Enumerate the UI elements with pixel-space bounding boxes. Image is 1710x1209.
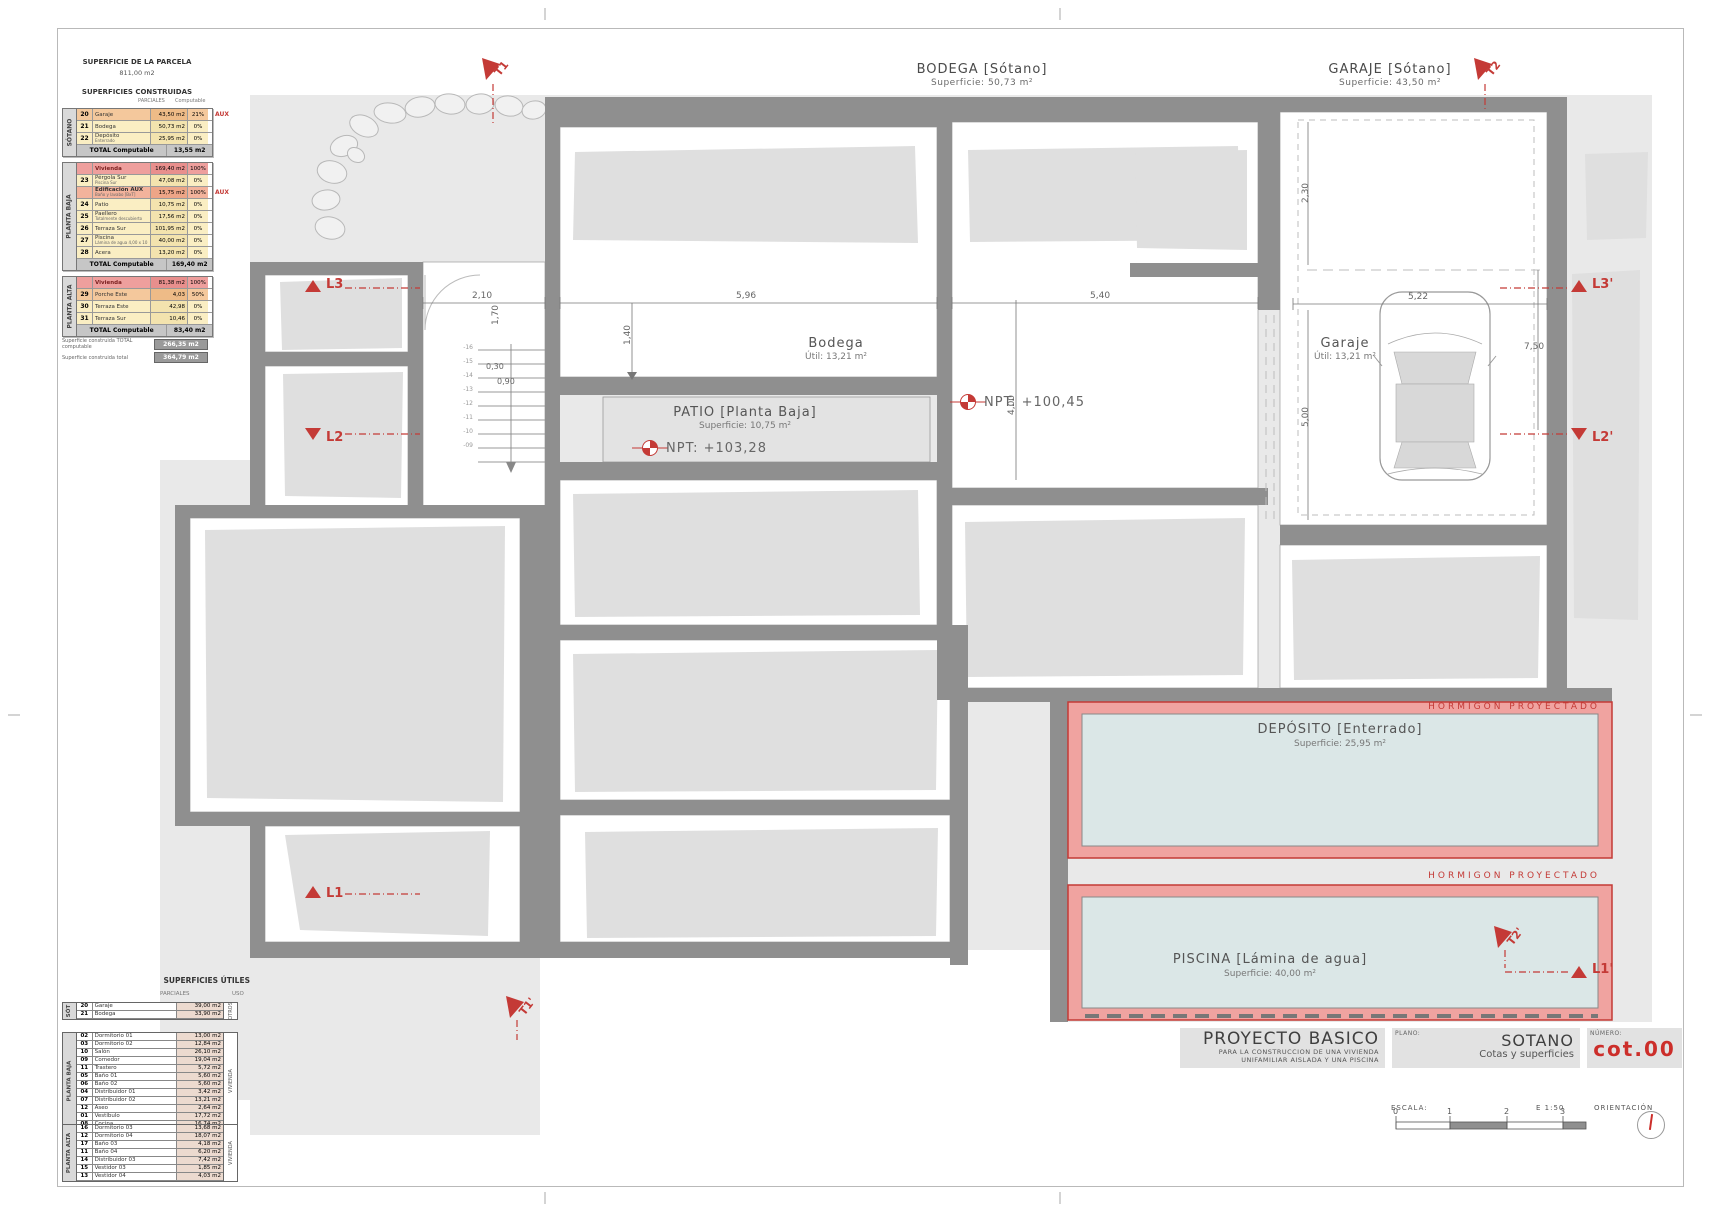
aux-tag: AUX xyxy=(215,189,229,196)
deposito-title: DEPÓSITO [Enterrado] xyxy=(1180,722,1500,737)
utable-row: 13 Vestidor 04 4,03 m2 xyxy=(77,1173,223,1181)
utable-row: 06 Baño 02 5,60 m2 xyxy=(77,1081,223,1089)
row-label-cell: PaelleroTotalmente descubierto xyxy=(93,211,151,222)
row-number xyxy=(77,187,93,198)
marker-l3-prime: L3' xyxy=(1592,277,1613,292)
built-sub-computable: Computable xyxy=(175,98,205,104)
utable-row: 20 Garaje 39,00 m2 xyxy=(77,1003,223,1011)
utable-row: 14 Distribuidor 03 7,42 m2 xyxy=(77,1157,223,1165)
row-label-cell: DepósitoEnterrado xyxy=(93,133,151,144)
row-label: Distribuidor 01 xyxy=(93,1089,178,1096)
table-row: 22 DepósitoEnterrado 25,95 m2 0% xyxy=(77,133,212,145)
row-value: 17,72 m2 xyxy=(177,1113,223,1120)
row-number: 21 xyxy=(77,121,93,132)
garaje-room-label: Garaje xyxy=(1265,336,1425,351)
row-number: 22 xyxy=(77,133,93,144)
utable-sot-side-label: SÓT xyxy=(66,1005,72,1017)
stair-num: -13 xyxy=(455,386,473,400)
built-sub-parciales: PARCIALES xyxy=(138,98,165,104)
garaje-zone-sub: Superficie: 43,50 m² xyxy=(1290,78,1490,88)
total-value: 169,40 m2 xyxy=(167,259,212,270)
row-label: Vestidor 03 xyxy=(93,1165,178,1172)
table-row: 23 Pérgola SurPiscina Sur 47,08 m2 0% xyxy=(77,175,212,187)
row-percent: 21% xyxy=(188,109,208,120)
piscina-title: PISCINA [Lámina de agua] xyxy=(1110,952,1430,967)
row-value: 47,08 m2 xyxy=(151,175,188,186)
table-sotano: SÓTANO 20 Garaje 43,50 m2 21% AUX 21 Bod… xyxy=(62,108,213,157)
row-value: 81,38 m2 xyxy=(151,277,188,288)
row-label: Garaje xyxy=(93,1003,178,1010)
dim-5-00: 5,00 xyxy=(1301,407,1311,427)
dim-7-50: 7,50 xyxy=(1524,342,1544,352)
row-value: 4,18 m2 xyxy=(177,1141,223,1148)
marker-l1: L1 xyxy=(326,886,343,901)
table-pb-side: PLANTA BAJA xyxy=(63,163,77,270)
row-number: 09 xyxy=(77,1057,93,1064)
bodega-zone-sub: Superficie: 50,73 m² xyxy=(882,78,1082,88)
row-label-cell: Porche Este xyxy=(93,289,151,300)
table-sotano-side: SÓTANO xyxy=(63,109,77,156)
titleblock-numero: NÚMERO: cot.00 xyxy=(1587,1028,1682,1068)
summary-line-1: Superficie construida TOTAL computable 2… xyxy=(62,338,208,350)
scale-tick-0: 0 xyxy=(1393,1107,1398,1116)
utable-pa-rows: 16 Dormitorio 03 13,68 m2 12 Dormitorio … xyxy=(77,1125,223,1181)
garaje-room-util: Útil: 13,21 m² xyxy=(1265,352,1425,362)
row-percent: 0% xyxy=(188,313,208,324)
row-number: 04 xyxy=(77,1089,93,1096)
row-number: 11 xyxy=(77,1149,93,1156)
summary-label: Superficie construida total xyxy=(62,355,154,361)
row-percent: 0% xyxy=(188,175,208,186)
row-number: 14 xyxy=(77,1157,93,1164)
utable-row: 09 Comedor 19,04 m2 xyxy=(77,1057,223,1065)
utable-row: 12 Aseo 2,64 m2 xyxy=(77,1105,223,1113)
row-label: Distribuidor 03 xyxy=(93,1157,178,1164)
stair-num: -16 xyxy=(455,344,473,358)
total-label: TOTAL Computable xyxy=(77,325,167,336)
table-row: 26 Terraza Sur 101,95 m2 0% xyxy=(77,223,212,235)
dim-1-70: 1,70 xyxy=(491,305,501,325)
row-number: 05 xyxy=(77,1073,93,1080)
utable-row: 07 Distribuidor 02 13,21 m2 xyxy=(77,1097,223,1105)
row-number: 31 xyxy=(77,313,93,324)
row-value: 25,95 m2 xyxy=(151,133,188,144)
row-label: Vestidor 04 xyxy=(93,1173,178,1180)
row-number: 12 xyxy=(77,1105,93,1112)
utable-row: 04 Distribuidor 01 3,42 m2 xyxy=(77,1089,223,1097)
stair-num: -11 xyxy=(455,414,473,428)
dim-5-96: 5,96 xyxy=(736,291,756,301)
row-number: 07 xyxy=(77,1097,93,1104)
row-percent: 0% xyxy=(188,223,208,234)
row-number: 02 xyxy=(77,1033,93,1040)
row-label-cell: Vivienda xyxy=(93,163,151,174)
stair-num: -12 xyxy=(455,400,473,414)
row-value: 2,64 m2 xyxy=(177,1105,223,1112)
row-number: 03 xyxy=(77,1041,93,1048)
utable-pa-uso: VIVIENDA xyxy=(223,1125,237,1181)
row-percent: 100% xyxy=(188,277,208,288)
row-number: 06 xyxy=(77,1081,93,1088)
stair-num: -15 xyxy=(455,358,473,372)
utiles-sub-parciales: PARCIALES xyxy=(160,991,190,997)
uso-label: VIVIENDA xyxy=(228,1069,234,1093)
row-value: 13,68 m2 xyxy=(177,1125,223,1132)
uso-label: OTROS xyxy=(228,1002,234,1020)
utable-sot-side: SÓT xyxy=(63,1003,77,1019)
utable-row: 03 Dormitorio 02 12,84 m2 xyxy=(77,1041,223,1049)
dim-0-30: 0,30 xyxy=(486,362,504,371)
row-percent: 0% xyxy=(188,133,208,144)
row-number: 16 xyxy=(77,1125,93,1132)
row-value: 7,42 m2 xyxy=(177,1157,223,1164)
row-label-cell: Garaje xyxy=(93,109,151,120)
row-percent: 0% xyxy=(188,121,208,132)
title-gap xyxy=(540,950,1066,1028)
row-value: 169,40 m2 xyxy=(151,163,188,174)
marker-l2-prime: L2' xyxy=(1592,430,1613,445)
stair-num: -14 xyxy=(455,372,473,386)
marker-l3: L3 xyxy=(326,277,343,292)
row-label: Vestíbulo xyxy=(93,1113,178,1120)
table-row: 25 PaelleroTotalmente descubierto 17,56 … xyxy=(77,211,212,223)
row-percent: 0% xyxy=(188,235,208,246)
utable-pa-side-label: PLANTA ALTA xyxy=(67,1133,73,1173)
row-value: 13,20 m2 xyxy=(151,247,188,258)
table-total-row: TOTAL Computable 13,55 m2 xyxy=(77,145,212,156)
row-number xyxy=(77,277,93,288)
row-value: 3,42 m2 xyxy=(177,1089,223,1096)
utable-row: 12 Dormitorio 04 18,07 m2 xyxy=(77,1133,223,1141)
compass-icon xyxy=(1637,1111,1665,1139)
row-number: 12 xyxy=(77,1133,93,1140)
scale-tick-1: 1 xyxy=(1447,1107,1452,1116)
utable-row: 16 Dormitorio 03 13,68 m2 xyxy=(77,1125,223,1133)
utable-row: 11 Baño 04 6,20 m2 xyxy=(77,1149,223,1157)
scale-tick-2: 2 xyxy=(1504,1107,1509,1116)
row-label: Dormitorio 04 xyxy=(93,1133,178,1140)
row-value: 4,03 xyxy=(151,289,188,300)
table-sotano-rows: 20 Garaje 43,50 m2 21% AUX 21 Bodega 50,… xyxy=(77,109,212,145)
total-value: 83,40 m2 xyxy=(167,325,212,336)
utable-row: 01 Vestíbulo 17,72 m2 xyxy=(77,1113,223,1121)
table-pa-side: PLANTA ALTA xyxy=(63,277,77,336)
utable-sot-uso: OTROS xyxy=(223,1003,237,1019)
row-number: 24 xyxy=(77,199,93,210)
orientacion-label: ORIENTACIÓN xyxy=(1594,1104,1653,1112)
row-value: 6,20 m2 xyxy=(177,1149,223,1156)
row-value: 4,03 m2 xyxy=(177,1173,223,1180)
row-percent: 0% xyxy=(188,199,208,210)
row-label: Dormitorio 02 xyxy=(93,1041,178,1048)
summary-value: 364,79 m2 xyxy=(154,352,208,363)
row-number: 29 xyxy=(77,289,93,300)
table-row: 31 Terraza Sur 10,46 0% xyxy=(77,313,212,325)
project-sub-2: UNIFAMILIAR AISLADA Y UNA PISCINA xyxy=(1180,1056,1385,1064)
row-value: 5,60 m2 xyxy=(177,1073,223,1080)
row-label: Baño 03 xyxy=(93,1141,178,1148)
parcel-value: 811,00 m2 xyxy=(62,69,212,77)
utable-row: 05 Baño 01 5,60 m2 xyxy=(77,1073,223,1081)
numero-label: NÚMERO: xyxy=(1590,1030,1622,1037)
hormigon-label-2: HORMIGON PROYECTADO xyxy=(1270,871,1600,881)
summary-line-2: Superficie construida total 364,79 m2 xyxy=(62,352,208,363)
row-label: Salón xyxy=(93,1049,178,1056)
row-value: 10,46 xyxy=(151,313,188,324)
table-row: 30 Terraza Este 42,98 0% xyxy=(77,301,212,313)
row-value: 10,75 m2 xyxy=(151,199,188,210)
row-number: 26 xyxy=(77,223,93,234)
dim-4-00: 4,00 xyxy=(1007,395,1017,415)
row-label-cell: Patio xyxy=(93,199,151,210)
table-row: Edificación AUXBaño y lavabo [BxT] 15,75… xyxy=(77,187,212,199)
table-pa-side-label: PLANTA ALTA xyxy=(66,285,73,329)
scale-tick-3: 3 xyxy=(1560,1107,1565,1116)
row-value: 5,60 m2 xyxy=(177,1081,223,1088)
titleblock-pl: PLANO: SOTANO Cotas y superficies xyxy=(1392,1028,1580,1068)
utable-row: 11 Trastero 5,72 m2 xyxy=(77,1065,223,1073)
table-planta-alta: PLANTA ALTA Vivienda 81,38 m2 100% 29 Po… xyxy=(62,276,213,337)
npt-level-1: NPT: +103,28 xyxy=(666,441,767,456)
dim-5-40: 5,40 xyxy=(1090,291,1110,301)
row-value: 12,84 m2 xyxy=(177,1041,223,1048)
row-value: 5,72 m2 xyxy=(177,1065,223,1072)
row-label-cell: Vivienda xyxy=(93,277,151,288)
scale-bar xyxy=(1396,1116,1586,1129)
row-value: 1,85 m2 xyxy=(177,1165,223,1172)
compass-needle-icon xyxy=(1649,1114,1653,1130)
uso-label: VIVIENDA xyxy=(228,1141,234,1165)
row-value: 13,00 m2 xyxy=(177,1033,223,1040)
table-row: 24 Patio 10,75 m2 0% xyxy=(77,199,212,211)
row-value: 26,10 m2 xyxy=(177,1049,223,1056)
row-number: 27 xyxy=(77,235,93,246)
table-row: 21 Bodega 50,73 m2 0% xyxy=(77,121,212,133)
deposito-sub: Superficie: 25,95 m² xyxy=(1180,739,1500,749)
garaje-zone-title: GARAJE [Sótano] xyxy=(1290,62,1490,77)
table-row: Vivienda 81,38 m2 100% xyxy=(77,277,212,289)
row-value: 43,50 m2 xyxy=(151,109,188,120)
utable-planta-alta: PLANTA ALTA 16 Dormitorio 03 13,68 m2 12… xyxy=(62,1124,238,1182)
project-sub-1: PARA LA CONSTRUCCION DE UNA VIVIENDA xyxy=(1180,1048,1385,1056)
stair-num: -10 xyxy=(455,428,473,442)
dim-0-90: 0,90 xyxy=(497,377,515,386)
table-total-row: TOTAL Computable 169,40 m2 xyxy=(77,259,212,270)
car xyxy=(1374,292,1496,480)
row-label-cell: Edificación AUXBaño y lavabo [BxT] xyxy=(93,187,151,198)
row-number xyxy=(77,163,93,174)
titleblock-project: PROYECTO BASICO PARA LA CONSTRUCCION DE … xyxy=(1180,1028,1385,1068)
row-label: Bodega xyxy=(93,1011,178,1018)
row-number: 10 xyxy=(77,1049,93,1056)
row-value: 17,56 m2 xyxy=(151,211,188,222)
npt-level-2: NPT: +100,45 xyxy=(984,395,1085,410)
row-number: 01 xyxy=(77,1113,93,1120)
summary-value: 266,35 m2 xyxy=(154,339,208,350)
row-value: 39,00 m2 xyxy=(177,1003,223,1010)
row-label: Baño 02 xyxy=(93,1081,178,1088)
patio-title: PATIO [Planta Baja] xyxy=(645,405,845,420)
row-label: Aseo xyxy=(93,1105,178,1112)
row-label: Dormitorio 01 xyxy=(93,1033,178,1040)
row-number: 20 xyxy=(77,1003,93,1010)
plano-sub: Cotas y superficies xyxy=(1392,1049,1580,1060)
row-value: 50,73 m2 xyxy=(151,121,188,132)
row-number: 28 xyxy=(77,247,93,258)
row-label-cell: Terraza Sur xyxy=(93,313,151,324)
total-label: TOTAL Computable xyxy=(77,145,167,156)
utable-row: 02 Dormitorio 01 13,00 m2 xyxy=(77,1033,223,1041)
row-value: 33,90 m2 xyxy=(177,1011,223,1018)
hormigon-label-1: HORMIGON PROYECTADO xyxy=(1270,702,1600,712)
bodega-room-label: Bodega xyxy=(756,336,916,351)
utable-pb-side: PLANTA BAJA xyxy=(63,1033,77,1129)
table-planta-baja: PLANTA BAJA Vivienda 169,40 m2 100% 23 P… xyxy=(62,162,213,271)
row-number: 17 xyxy=(77,1141,93,1148)
dim-1-40: 1,40 xyxy=(623,325,633,345)
total-value: 13,55 m2 xyxy=(167,145,212,156)
utable-pb-rows: 02 Dormitorio 01 13,00 m2 03 Dormitorio … xyxy=(77,1033,223,1129)
row-number: 30 xyxy=(77,301,93,312)
utable-row: 17 Baño 03 4,18 m2 xyxy=(77,1141,223,1149)
utable-pa-side: PLANTA ALTA xyxy=(63,1125,77,1181)
row-percent: 100% xyxy=(188,187,208,198)
utable-planta-baja: PLANTA BAJA 02 Dormitorio 01 13,00 m2 03… xyxy=(62,1032,238,1130)
total-label: TOTAL Computable xyxy=(77,259,167,270)
row-percent: 0% xyxy=(188,247,208,258)
utable-row: 15 Vestidor 03 1,85 m2 xyxy=(77,1165,223,1173)
row-percent: 0% xyxy=(188,211,208,222)
table-row: 28 Acera 13,20 m2 0% xyxy=(77,247,212,259)
dim-2-10: 2,10 xyxy=(472,291,492,301)
row-value: 13,21 m2 xyxy=(177,1097,223,1104)
row-value: 15,75 m2 xyxy=(151,187,188,198)
utable-pb-uso: VIVIENDA xyxy=(223,1033,237,1129)
row-value: 101,95 m2 xyxy=(151,223,188,234)
patio-sub: Superficie: 10,75 m² xyxy=(645,421,845,431)
summary-label: Superficie construida TOTAL computable xyxy=(62,338,154,350)
table-row: 20 Garaje 43,50 m2 21% AUX xyxy=(77,109,212,121)
stair-numbers: -16 -15 -14 -13 -12 -11 -10 -09 xyxy=(455,344,473,456)
bodega-room-util: Útil: 13,21 m² xyxy=(756,352,916,362)
stair-num: -09 xyxy=(455,442,473,456)
row-percent: 50% xyxy=(188,289,208,300)
row-number: 15 xyxy=(77,1165,93,1172)
row-label: Distribuidor 02 xyxy=(93,1097,178,1104)
row-number: 11 xyxy=(77,1065,93,1072)
table-row: 29 Porche Este 4,03 50% xyxy=(77,289,212,301)
row-percent: 100% xyxy=(188,163,208,174)
table-sotano-side-label: SÓTANO xyxy=(66,119,73,147)
row-label-cell: PiscinaLámina de agua 4,00 x 10 xyxy=(93,235,151,246)
table-row: 27 PiscinaLámina de agua 4,00 x 10 40,00… xyxy=(77,235,212,247)
row-value: 40,00 m2 xyxy=(151,235,188,246)
table-pa-rows: Vivienda 81,38 m2 100% 29 Porche Este 4,… xyxy=(77,277,212,325)
piscina-sub: Superficie: 40,00 m² xyxy=(1110,969,1430,979)
row-value: 18,07 m2 xyxy=(177,1133,223,1140)
utable-sotano: SÓT 20 Garaje 39,00 m2 21 Bodega 33,90 m… xyxy=(62,1002,238,1020)
row-number: 13 xyxy=(77,1173,93,1180)
dim-2-30: 2,30 xyxy=(1301,183,1311,203)
utable-row: 10 Salón 26,10 m2 xyxy=(77,1049,223,1057)
bodega-zone-title: BODEGA [Sótano] xyxy=(882,62,1082,77)
parcel-title: SUPERFICIE DE LA PARCELA xyxy=(62,58,212,66)
utiles-title: SUPERFICIES ÚTILES xyxy=(62,976,250,985)
marker-l1-prime: L1' xyxy=(1592,962,1613,977)
row-label-cell: Acera xyxy=(93,247,151,258)
table-total-row: TOTAL Computable 83,40 m2 xyxy=(77,325,212,336)
table-row: Vivienda 169,40 m2 100% xyxy=(77,163,212,175)
table-pb-side-label: PLANTA BAJA xyxy=(66,194,73,238)
row-value: 19,04 m2 xyxy=(177,1057,223,1064)
row-number: 20 xyxy=(77,109,93,120)
row-label: Baño 01 xyxy=(93,1073,178,1080)
row-label-cell: Terraza Sur xyxy=(93,223,151,234)
project-title: PROYECTO BASICO xyxy=(1180,1028,1385,1048)
row-percent: 0% xyxy=(188,301,208,312)
built-title: SUPERFICIES CONSTRUIDAS xyxy=(62,88,212,96)
aux-tag: AUX xyxy=(215,111,229,118)
row-label: Comedor xyxy=(93,1057,178,1064)
table-pb-rows: Vivienda 169,40 m2 100% 23 Pérgola SurPi… xyxy=(77,163,212,259)
dim-5-22: 5,22 xyxy=(1408,292,1428,302)
row-number: 25 xyxy=(77,211,93,222)
row-label: Trastero xyxy=(93,1065,178,1072)
utable-sot-rows: 20 Garaje 39,00 m2 21 Bodega 33,90 m2 xyxy=(77,1003,223,1019)
plano-label: PLANO: xyxy=(1395,1030,1420,1037)
marker-l2: L2 xyxy=(326,430,343,445)
row-label: Baño 04 xyxy=(93,1149,178,1156)
row-number: 21 xyxy=(77,1011,93,1018)
row-label-cell: Pérgola SurPiscina Sur xyxy=(93,175,151,186)
row-label: Dormitorio 03 xyxy=(93,1125,178,1132)
row-value: 42,98 xyxy=(151,301,188,312)
drawing-sheet-stage: BODEGA [Sótano] Superficie: 50,73 m² GAR… xyxy=(0,0,1710,1209)
row-label-cell: Bodega xyxy=(93,121,151,132)
row-number: 23 xyxy=(77,175,93,186)
utable-row: 21 Bodega 33,90 m2 xyxy=(77,1011,223,1019)
utable-pb-side-label: PLANTA BAJA xyxy=(67,1061,73,1102)
row-label-cell: Terraza Este xyxy=(93,301,151,312)
utiles-sub-uso: USO xyxy=(232,991,244,997)
